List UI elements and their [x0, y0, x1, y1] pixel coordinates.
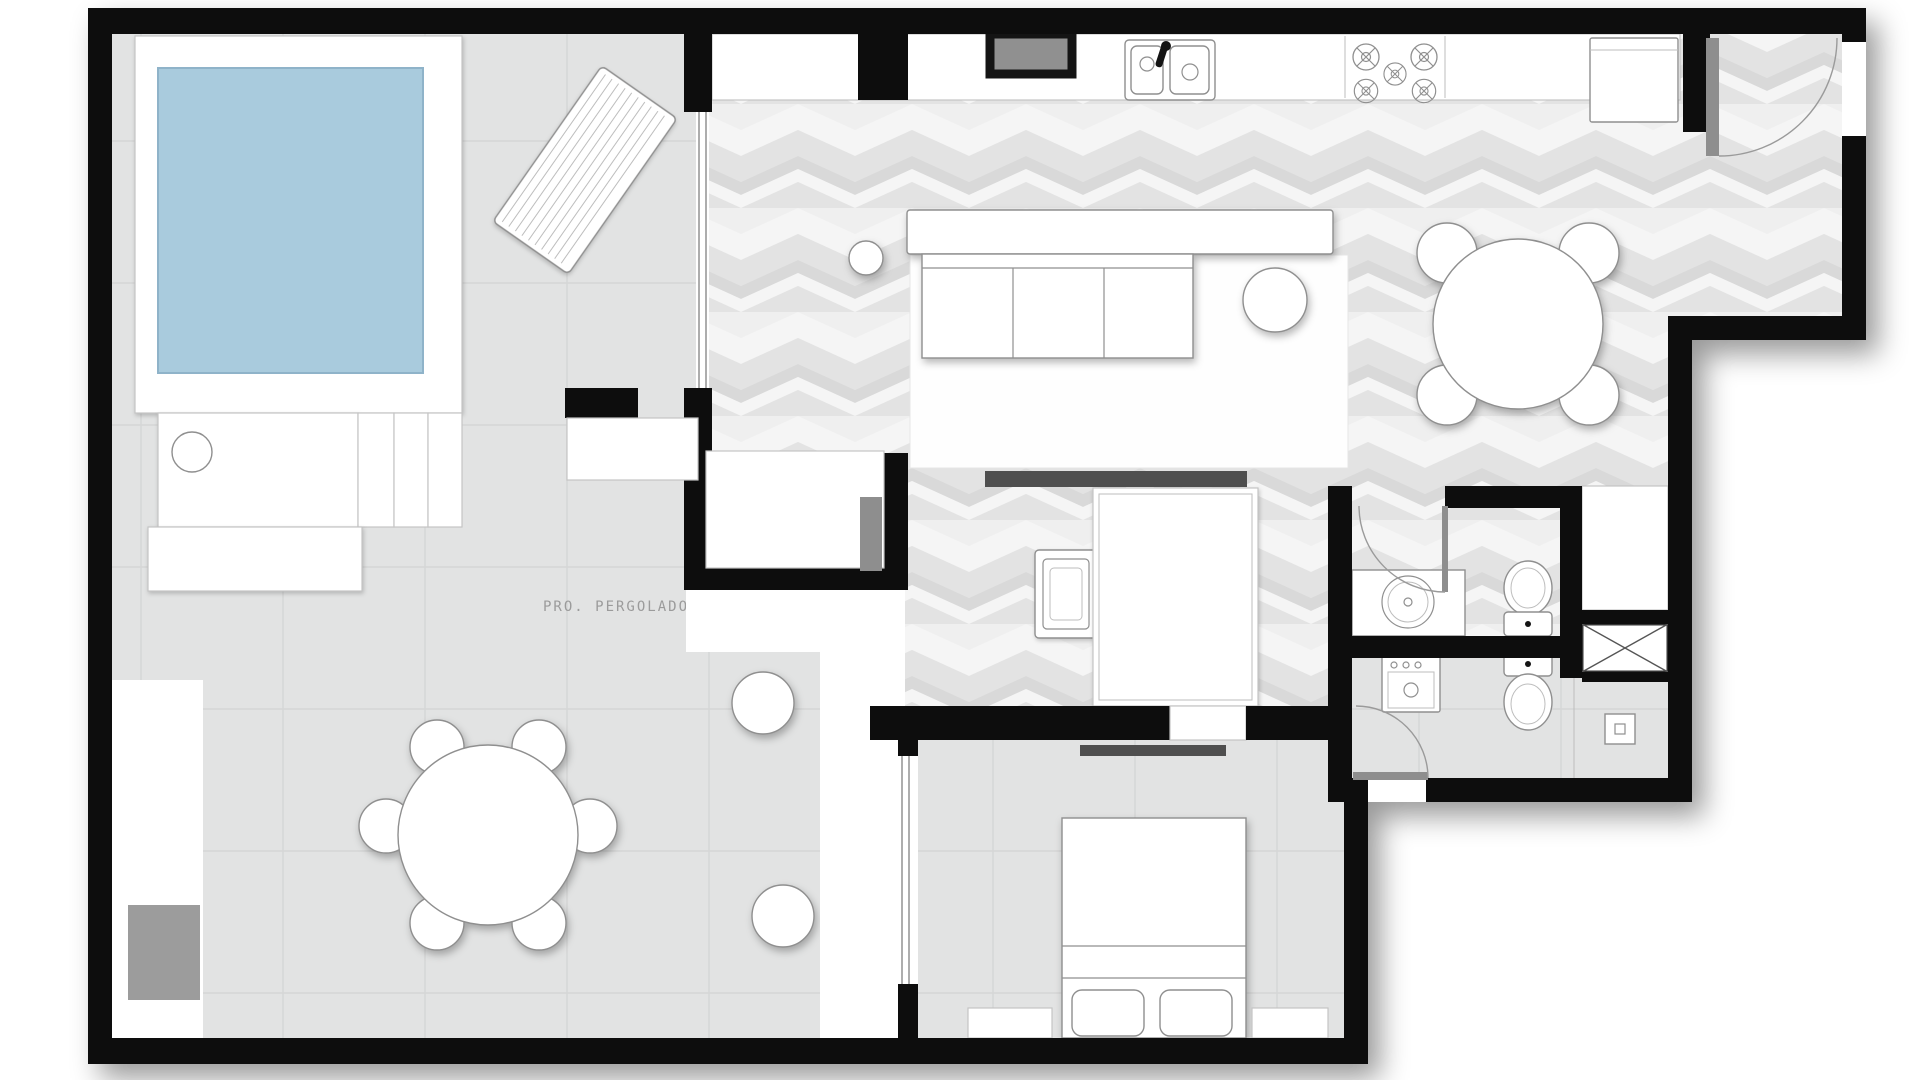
- shaft-bottom-wall: [1582, 672, 1668, 682]
- wall-niche: [990, 34, 1072, 74]
- deck-platform: [148, 527, 362, 591]
- bedroom-top-wall-b: [1246, 706, 1345, 740]
- pillow: [1160, 990, 1232, 1036]
- kitchen-sink: [1125, 40, 1215, 100]
- bidet: [1504, 652, 1552, 730]
- pouf: [752, 885, 814, 947]
- pool-bench: [158, 413, 358, 527]
- bench-stool: [172, 432, 212, 472]
- floor-mat: [128, 905, 200, 1000]
- living-room: [849, 210, 1348, 487]
- bathroom-door-leaf: [1442, 506, 1448, 592]
- closet-interior: [706, 451, 884, 568]
- nightstand: [1252, 1008, 1328, 1038]
- pouf: [732, 672, 794, 734]
- glass-cap-top: [898, 740, 918, 756]
- nightstand: [968, 1008, 1052, 1038]
- swimming-pool: [158, 68, 423, 373]
- bathroom-top-wall: [1445, 486, 1580, 508]
- wall-step: [1692, 316, 1866, 340]
- small-side-table: [849, 241, 883, 275]
- shaft-x-box: [1582, 624, 1668, 672]
- wall-right-top: [1842, 8, 1866, 42]
- pillar: [858, 34, 908, 100]
- entry-door-leaf: [1706, 38, 1719, 156]
- sofa-back: [907, 210, 1333, 254]
- pergolado-label: PRO. PERGOLADO: [543, 599, 689, 615]
- wall-bottom: [88, 1038, 1368, 1064]
- pillar: [684, 34, 712, 112]
- glass-cap-bottom: [898, 984, 918, 1040]
- toilet-divider-wall: [1352, 636, 1562, 658]
- bathroom-left-wall: [1328, 486, 1352, 802]
- wall-shelf-niche: [1170, 706, 1246, 740]
- closet-left-wall: [1560, 486, 1582, 678]
- tv-console: [985, 471, 1247, 487]
- dining-area: [1417, 223, 1619, 425]
- armchair: [1035, 550, 1097, 638]
- sink-counter: [1352, 570, 1465, 636]
- toilet: [1504, 561, 1552, 636]
- floor-drain: [1605, 714, 1635, 744]
- wall-top: [88, 8, 1866, 34]
- wall-right-lower: [1344, 778, 1368, 1064]
- entry-pillar: [1683, 34, 1710, 132]
- dining-table: [1433, 239, 1603, 409]
- wardrobe: [1093, 488, 1258, 706]
- fridge: [1590, 38, 1678, 122]
- wall-segment: [565, 388, 638, 418]
- shaft-top-wall: [1582, 610, 1668, 624]
- wall-service-bottom-b: [1426, 778, 1692, 802]
- bed: [1062, 818, 1246, 1038]
- closet-white-room: [1582, 486, 1668, 610]
- bedroom-tv-bar: [1080, 745, 1226, 756]
- wall-left: [88, 8, 112, 1064]
- wall-right-mid: [1668, 316, 1692, 802]
- low-cabinet: [567, 418, 698, 480]
- washer: [1382, 656, 1440, 712]
- closet-door: [860, 497, 882, 571]
- floor-plan-canvas: PRO. PERGOLADO: [0, 0, 1920, 1080]
- round-table-top: [398, 745, 578, 925]
- service-door-leaf: [1353, 772, 1428, 780]
- wall-right: [1842, 136, 1866, 340]
- sofa-seats: [922, 254, 1193, 358]
- side-table: [1243, 268, 1307, 332]
- pillow: [1072, 990, 1144, 1036]
- deck-steps: [358, 413, 462, 527]
- bedroom-top-wall-a: [870, 706, 1170, 740]
